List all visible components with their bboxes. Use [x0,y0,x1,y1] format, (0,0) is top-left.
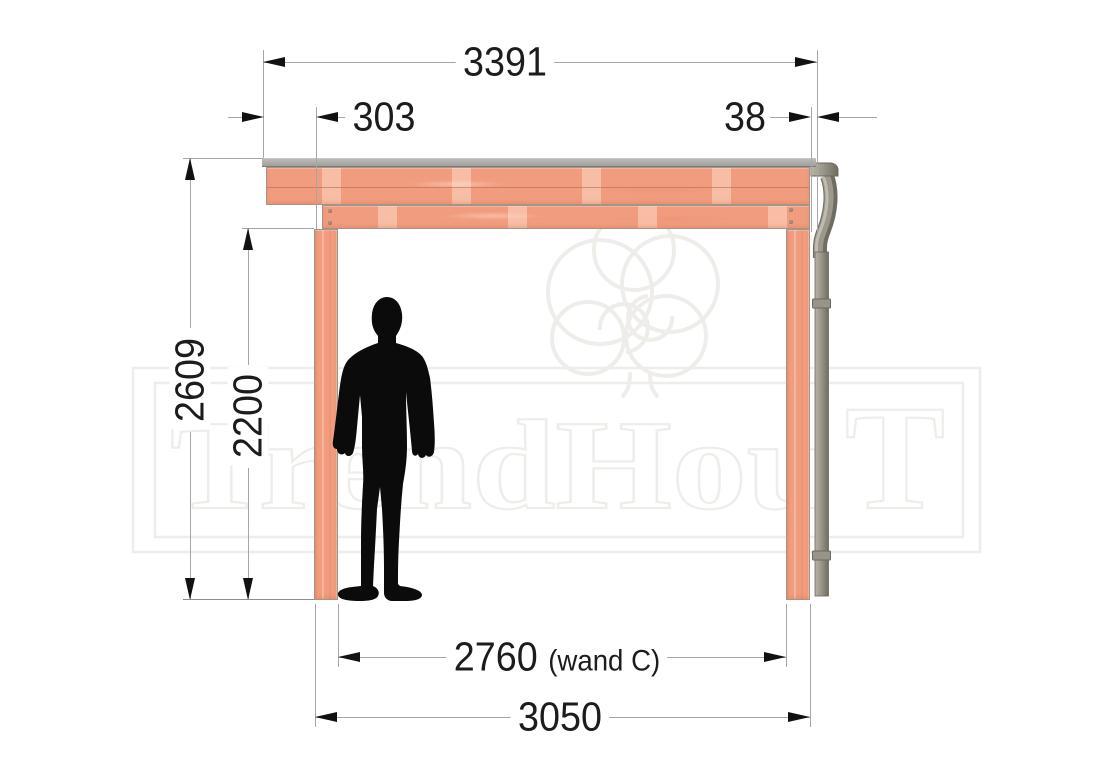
screw [328,221,332,225]
dimension-tail [839,117,877,118]
dim-outer-span: 3050 [511,697,610,738]
pipe-coupling-upper [813,299,831,308]
dim-roof-width: 3391 [456,42,555,83]
arrowhead-icon [185,578,195,600]
fascia-seam [267,187,809,188]
watermark-text-final: T [845,375,945,541]
extension-line [183,158,263,159]
arrowhead-icon [338,652,360,662]
ground-line [183,599,314,600]
extension-line [315,604,316,727]
arrowhead-icon [263,57,285,67]
fascia-board [266,167,810,205]
right-post [786,229,810,600]
arrowhead-icon [795,57,817,67]
dimension-line-total-height [190,158,191,328]
roof-covering-strip [262,158,816,167]
arrowhead-icon [243,578,253,600]
dimension-tail [770,117,789,118]
dimension-line-total-height [190,432,191,600]
veranda-elevation-drawing: TrendHou T [0,0,1120,770]
dimension-tail [228,117,242,118]
extension-line [811,107,812,232]
dim-clear-height: 2200 [228,367,269,466]
arrowhead-icon [242,112,264,122]
extension-line [810,604,811,727]
dim-total-height: 2609 [170,331,211,430]
extension-line [817,50,818,232]
gutter-downpipe [811,163,838,596]
extension-line [786,604,787,667]
dim-inner-span: 2760 (wand C) [446,637,667,678]
arrowhead-icon [315,712,337,722]
extension-line [316,107,317,229]
arrowhead-icon [788,712,810,722]
arrowhead-icon [243,228,253,250]
dim-inner-span-value: 2760 [454,634,538,680]
arrowhead-icon [316,112,338,122]
arrowhead-icon [185,158,195,180]
screw [789,220,793,224]
arrowhead-icon [817,112,839,122]
arrowhead-icon [789,112,811,122]
arrowhead-icon [764,652,786,662]
wall-beam [322,205,810,229]
human-silhouette [330,296,442,602]
screw [328,209,332,213]
dim-left-overhang: 303 [345,97,423,138]
dim-inner-span-note: (wand C) [548,645,660,678]
pipe-coupling-lower [813,551,831,560]
screw [789,208,793,212]
dim-right-offset: 38 [717,97,774,138]
